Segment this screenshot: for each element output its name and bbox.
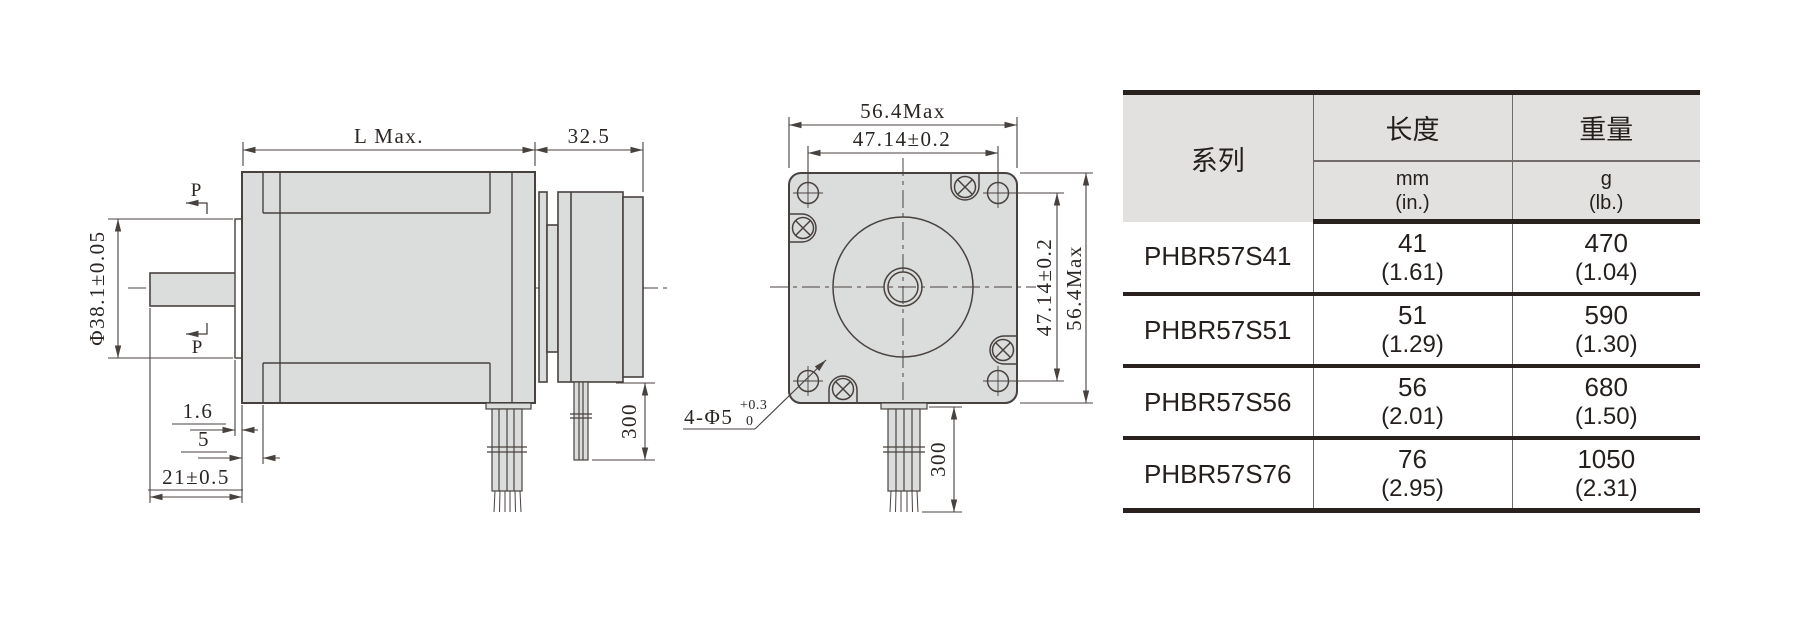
weight-cell: 470 (1.04) xyxy=(1512,222,1700,295)
brake-lead-wires xyxy=(570,382,592,460)
unit-weight-g: g xyxy=(1513,167,1701,191)
length-mm: 51 xyxy=(1314,301,1512,331)
section-marker-bottom xyxy=(186,323,207,334)
dim-front-height-label: 56.4Max xyxy=(1062,245,1086,331)
weight-lb: (1.30) xyxy=(1513,331,1701,359)
dim-pilot-diameter-label: Φ38.1±0.05 xyxy=(85,230,109,345)
spec-table: 系列 长度 重量 mm (in.) g (lb.) PHBR57S41 41 (… xyxy=(1123,90,1700,513)
datasheet-page: L Max. 32.5 Φ38.1±0.05 P P xyxy=(0,0,1800,619)
hole-callout-tol-upper: +0.3 xyxy=(740,398,767,413)
dim-5-label: 5 xyxy=(198,427,210,451)
length-mm: 76 xyxy=(1314,445,1512,475)
hole-callout-label: 4-Φ5 xyxy=(684,405,733,429)
length-cell: 56 (2.01) xyxy=(1313,366,1512,438)
weight-lb: (1.50) xyxy=(1513,403,1701,431)
dim-1-6-label: 1.6 xyxy=(183,399,214,423)
weight-g: 470 xyxy=(1513,229,1701,259)
length-mm: 56 xyxy=(1314,373,1512,403)
motor-shaft xyxy=(150,273,237,306)
dim-hole-pitch-v-label: 47.14±0.2 xyxy=(1032,238,1056,337)
side-view: L Max. 32.5 Φ38.1±0.05 P P xyxy=(85,124,668,512)
dim-front-300-label: 300 xyxy=(926,441,950,477)
weight-cell: 1050 (2.31) xyxy=(1512,438,1700,511)
length-cell: 41 (1.61) xyxy=(1313,222,1512,295)
weight-lb: (2.31) xyxy=(1513,475,1701,503)
table-units-weight: g (lb.) xyxy=(1512,161,1700,222)
hole-callout-tol-lower: 0 xyxy=(746,414,754,429)
length-in: (1.61) xyxy=(1314,259,1512,287)
length-cell: 76 (2.95) xyxy=(1313,438,1512,511)
series-name: PHBR57S76 xyxy=(1123,438,1313,511)
weight-g: 1050 xyxy=(1513,445,1701,475)
section-marker-top-label: P xyxy=(191,180,202,201)
dim-front-width-label: 56.4Max xyxy=(860,99,946,123)
weight-lb: (1.04) xyxy=(1513,259,1701,287)
motor-lead-wires xyxy=(486,403,531,512)
series-name: PHBR57S51 xyxy=(1123,294,1313,366)
table-header-length: 长度 xyxy=(1313,93,1512,162)
front-view: 56.4Max 47.14±0.2 47.14±0.2 56.4Max xyxy=(683,99,1093,512)
table-row: PHBR57S76 76 (2.95) 1050 (2.31) xyxy=(1123,438,1700,511)
table-header-weight: 重量 xyxy=(1512,93,1700,162)
table-row: PHBR57S41 41 (1.61) 470 (1.04) xyxy=(1123,222,1700,295)
dim-l-max-label: L Max. xyxy=(354,124,424,148)
section-marker-top xyxy=(186,203,207,214)
weight-g: 680 xyxy=(1513,373,1701,403)
length-in: (2.01) xyxy=(1314,403,1512,431)
length-cell: 51 (1.29) xyxy=(1313,294,1512,366)
length-in: (1.29) xyxy=(1314,331,1512,359)
front-lead-wires xyxy=(881,403,927,512)
brake-unit xyxy=(539,192,643,382)
dim-32-5-label: 32.5 xyxy=(568,124,611,148)
motor-body xyxy=(242,172,535,403)
table-row: PHBR57S51 51 (1.29) 590 (1.30) xyxy=(1123,294,1700,366)
weight-cell: 590 (1.30) xyxy=(1512,294,1700,366)
dim-32-5 xyxy=(535,142,643,192)
table-units-length: mm (in.) xyxy=(1313,161,1512,222)
length-mm: 41 xyxy=(1314,229,1512,259)
series-name: PHBR57S56 xyxy=(1123,366,1313,438)
unit-weight-lb: (lb.) xyxy=(1513,191,1701,215)
dim-hole-pitch-h-label: 47.14±0.2 xyxy=(853,127,952,151)
section-marker-bottom-label: P xyxy=(192,337,203,358)
dim-side-300-label: 300 xyxy=(617,403,641,439)
table-header-series: 系列 xyxy=(1123,93,1313,222)
weight-cell: 680 (1.50) xyxy=(1512,366,1700,438)
table-row: PHBR57S56 56 (2.01) 680 (1.50) xyxy=(1123,366,1700,438)
unit-length-mm: mm xyxy=(1314,167,1512,191)
length-in: (2.95) xyxy=(1314,475,1512,503)
dim-21-label: 21±0.5 xyxy=(162,465,230,489)
pilot-boss xyxy=(235,219,242,358)
unit-length-in: (in.) xyxy=(1314,191,1512,215)
series-name: PHBR57S41 xyxy=(1123,222,1313,295)
weight-g: 590 xyxy=(1513,301,1701,331)
